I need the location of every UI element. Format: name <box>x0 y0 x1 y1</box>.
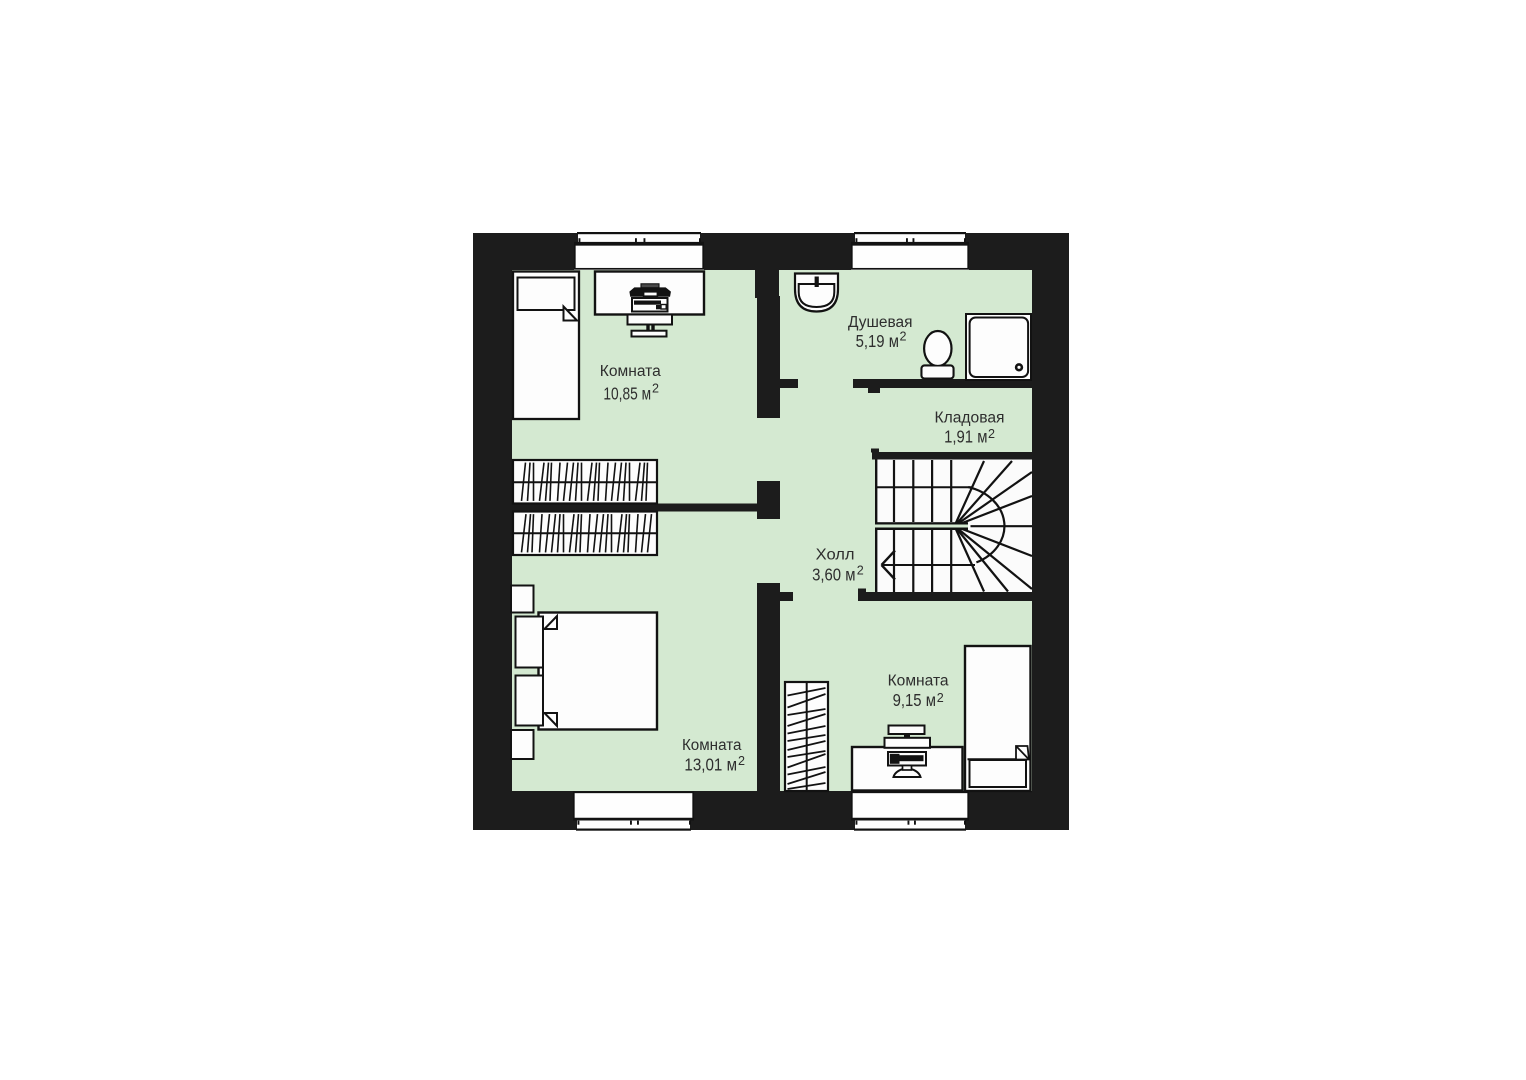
svg-text:2: 2 <box>857 564 864 578</box>
svg-text:1,91 м: 1,91 м <box>944 427 987 447</box>
svg-text:2: 2 <box>937 691 944 705</box>
svg-text:2: 2 <box>652 382 659 396</box>
svg-text:13,01 м: 13,01 м <box>684 755 737 775</box>
svg-text:Комната: Комната <box>682 737 742 754</box>
svg-text:Комната: Комната <box>888 673 949 690</box>
svg-text:2: 2 <box>988 427 995 441</box>
svg-text:2: 2 <box>900 330 907 344</box>
svg-text:Душевая: Душевая <box>848 314 913 331</box>
svg-text:10,85 м: 10,85 м <box>603 384 651 404</box>
svg-text:Холл: Холл <box>816 547 855 564</box>
svg-text:Кладовая: Кладовая <box>935 410 1005 427</box>
svg-text:9,15 м: 9,15 м <box>893 690 936 710</box>
svg-text:5,19 м: 5,19 м <box>856 331 899 351</box>
svg-text:3,60 м: 3,60 м <box>812 565 855 585</box>
svg-text:2: 2 <box>738 754 745 768</box>
svg-text:Комната: Комната <box>600 363 661 380</box>
